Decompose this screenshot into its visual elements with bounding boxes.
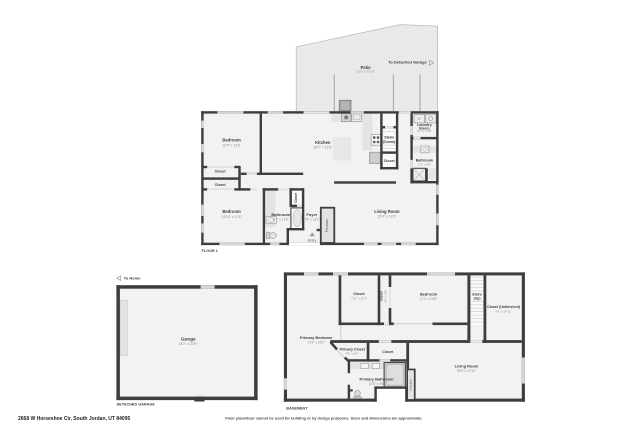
svg-text:(Down): (Down) [383,140,396,144]
svg-text:Foyer: Foyer [306,212,317,217]
svg-text:23'4" x 13'3": 23'4" x 13'3" [378,215,397,219]
svg-text:26'7" x 15'5": 26'7" x 15'5" [313,146,332,150]
svg-text:12'9" x 13'6": 12'9" x 13'6" [222,143,241,147]
svg-text:Closet: Closet [294,192,298,203]
svg-text:Closet: Closet [382,350,394,354]
svg-text:Fireplace: Fireplace [408,378,412,390]
svg-text:2668 W Horseshoe Cir, South Jo: 2668 W Horseshoe Cir, South Jordan, UT 8… [18,416,130,422]
svg-text:Bedroom: Bedroom [222,138,241,143]
svg-text:Garage: Garage [181,337,196,342]
svg-text:Living Room: Living Room [374,209,400,214]
svg-text:Entry: Entry [308,238,317,242]
svg-text:Primary Bathroom: Primary Bathroom [360,377,394,382]
svg-text:8'0" x 6'3": 8'0" x 6'3" [346,352,359,356]
svg-text:To Home: To Home [124,276,142,281]
svg-text:31'5" x 30'10": 31'5" x 30'10" [357,69,375,73]
svg-text:31'2" x 24'9": 31'2" x 24'9" [179,342,198,346]
svg-text:13'6" x 26'1": 13'6" x 26'1" [307,341,324,345]
svg-text:DETACHED GARAGE: DETACHED GARAGE [117,403,156,407]
svg-text:Bedroom: Bedroom [222,209,241,214]
svg-text:Closet: Closet [215,183,227,187]
svg-text:5'4" x 6'10": 5'4" x 6'10" [417,129,432,133]
svg-text:8'3" x 14'11": 8'3" x 14'11" [495,309,511,313]
svg-text:8'1" x 11'8": 8'1" x 11'8" [273,217,290,221]
svg-text:17'2" x 10'8": 17'2" x 10'8" [420,297,437,301]
svg-text:Bathroom: Bathroom [271,212,290,217]
svg-text:FLOOR 1: FLOOR 1 [202,249,218,253]
svg-text:Closet (Unfinished): Closet (Unfinished) [487,305,521,309]
svg-text:7'8" x 13'1": 7'8" x 13'1" [304,217,321,221]
svg-text:(Up): (Up) [474,297,481,301]
svg-text:12'8" x 9'5": 12'8" x 9'5" [369,382,385,386]
svg-text:5'5" x 8'2": 5'5" x 8'2" [418,162,431,166]
svg-text:Closet: Closet [353,292,365,296]
svg-text:To Detached Garage: To Detached Garage [388,60,427,65]
svg-text:Bedroom: Bedroom [420,291,438,296]
svg-text:Living Room: Living Room [455,364,479,369]
svg-text:13'10" x 11'8": 13'10" x 11'8" [221,215,242,219]
svg-text:2'4" x 10'8": 2'4" x 10'8" [384,289,388,302]
svg-text:BASEMENT: BASEMENT [286,407,308,411]
svg-text:Fireplace: Fireplace [325,219,329,233]
svg-text:Floor plans/tour cannot be use: Floor plans/tour cannot be used for buil… [225,417,422,421]
svg-text:Primary Bedroom: Primary Bedroom [300,335,333,340]
svg-text:Closet: Closet [380,290,384,301]
svg-text:26'5" x 12'10": 26'5" x 12'10" [457,369,476,373]
svg-text:7'11" x 11'3": 7'11" x 11'3" [351,297,367,301]
svg-text:Closet: Closet [215,169,227,173]
svg-text:Kitchen: Kitchen [315,140,331,145]
svg-text:Closet: Closet [384,159,396,163]
